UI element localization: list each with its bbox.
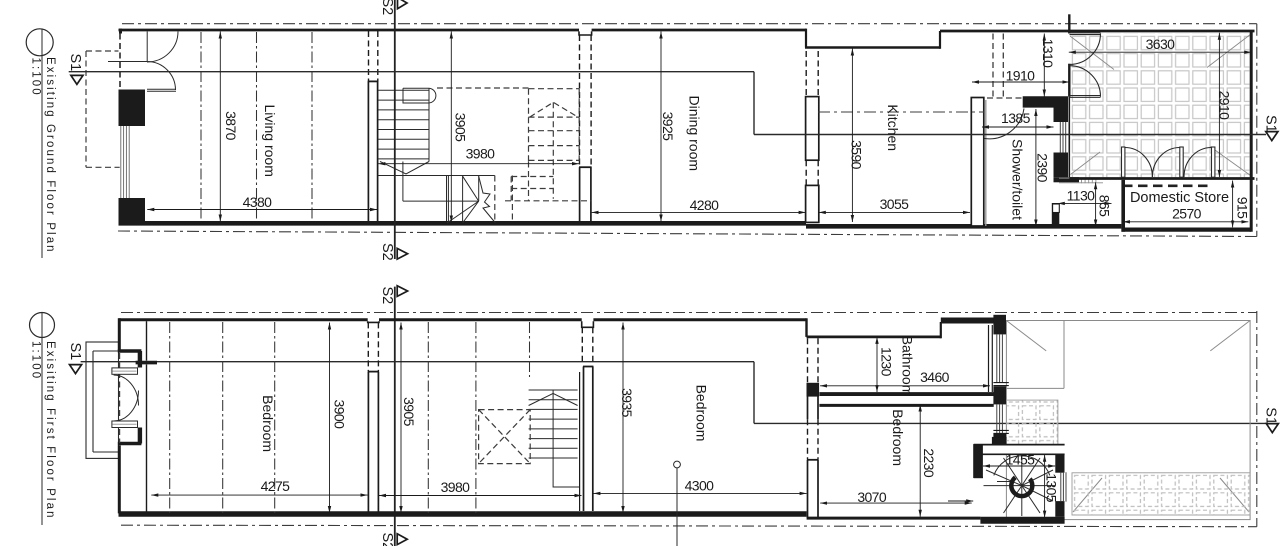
svg-text:915: 915 [1235,197,1251,219]
svg-text:1385: 1385 [1001,110,1031,126]
svg-text:Bedroom: Bedroom [693,385,709,442]
svg-text:S2: S2 [379,533,395,546]
svg-text:3980: 3980 [466,146,496,162]
svg-text:Bathroom: Bathroom [899,336,915,397]
svg-text:3055: 3055 [880,196,910,212]
svg-text:2230: 2230 [921,448,937,478]
svg-text:3935: 3935 [619,388,635,418]
svg-text:865: 865 [1097,195,1113,217]
svg-text:Dining room: Dining room [686,96,702,171]
svg-text:3980: 3980 [441,479,471,495]
svg-text:1:100: 1:100 [30,341,42,380]
svg-text:4380: 4380 [243,194,273,210]
svg-text:Exisiting First Floor Plan: Exisiting First Floor Plan [44,341,56,520]
svg-text:Shower/toilet: Shower/toilet [1009,139,1025,220]
svg-text:3460: 3460 [920,369,950,385]
svg-text:2910: 2910 [1217,91,1233,121]
svg-text:Exisiting Ground Floor Plan: Exisiting Ground Floor Plan [44,57,56,254]
svg-text:3900: 3900 [332,400,348,430]
svg-text:3925: 3925 [660,112,676,142]
svg-text:1230: 1230 [879,347,895,377]
svg-text:3905: 3905 [453,113,469,143]
svg-text:S2: S2 [379,287,395,305]
svg-text:Bedroom: Bedroom [890,409,906,466]
svg-text:1130: 1130 [1067,188,1096,204]
svg-text:2390: 2390 [1035,153,1051,183]
svg-text:4275: 4275 [261,478,291,494]
svg-text:3905: 3905 [401,397,417,427]
svg-text:Bedroom: Bedroom [260,395,276,452]
svg-text:S1: S1 [67,343,83,361]
svg-text:S2: S2 [379,0,395,15]
svg-text:1910: 1910 [1006,68,1036,84]
svg-text:2570: 2570 [1172,206,1202,222]
svg-text:4300: 4300 [685,478,715,494]
svg-text:4280: 4280 [690,197,720,213]
svg-text:S1: S1 [67,54,83,72]
svg-text:Domestic Store: Domestic Store [1130,190,1229,206]
svg-text:S1: S1 [1262,115,1278,133]
svg-text:S2: S2 [379,243,395,261]
svg-text:S1: S1 [1262,407,1278,425]
svg-text:3630: 3630 [1146,36,1176,52]
svg-text:Living room: Living room [262,105,278,177]
svg-text:3590: 3590 [849,140,865,170]
svg-text:3070: 3070 [857,489,887,505]
svg-text:3870: 3870 [223,111,239,141]
svg-text:1:100: 1:100 [30,58,42,97]
svg-text:1305: 1305 [1044,473,1060,503]
svg-text:Kitchen: Kitchen [885,104,901,151]
svg-text:1310: 1310 [1040,39,1056,69]
svg-text:1455: 1455 [1006,452,1036,468]
